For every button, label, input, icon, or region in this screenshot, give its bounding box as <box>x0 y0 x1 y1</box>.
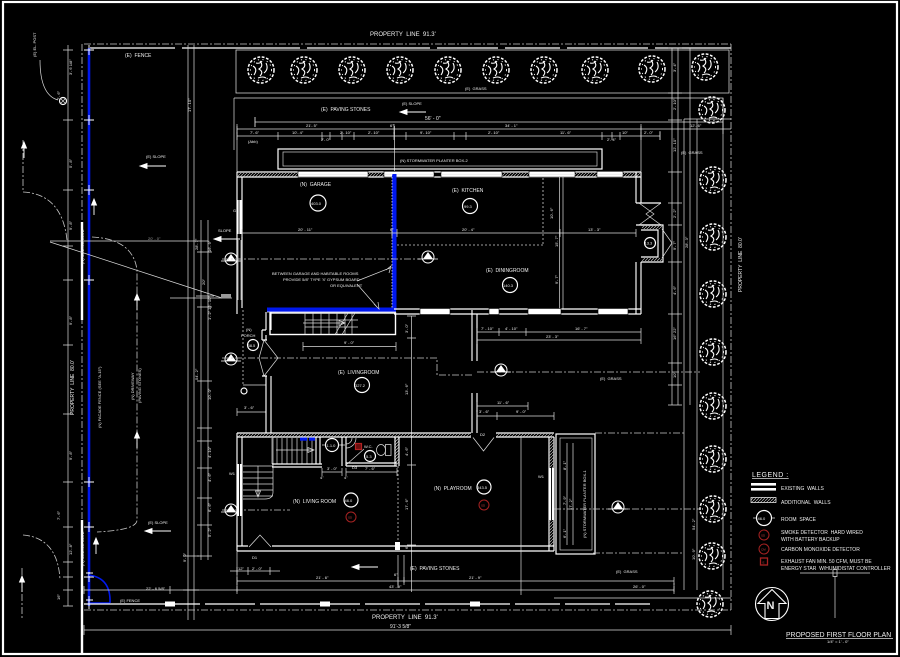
svg-text:9'- 10": 9'- 10" <box>420 130 432 135</box>
svg-text:7' - 6": 7' - 6" <box>365 466 376 471</box>
svg-text:46.0: 46.0 <box>345 498 354 503</box>
svg-text:PROVIDE 5/8" TYPE 'X' GYPSUM B: PROVIDE 5/8" TYPE 'X' GYPSUM BOARD <box>283 277 360 282</box>
svg-text:(N) FACADE FENCE (SEE "A-15"): (N) FACADE FENCE (SEE "A-15") <box>97 366 102 428</box>
svg-text:17'- 6": 17'- 6" <box>404 498 409 510</box>
svg-text:3' - 6": 3' - 6" <box>244 405 255 410</box>
svg-text:11' - 6": 11' - 6" <box>497 400 510 405</box>
svg-text:6": 6" <box>390 123 394 128</box>
svg-text:21' - 9": 21' - 9" <box>469 575 482 580</box>
svg-text:W1: W1 <box>538 474 545 479</box>
svg-text:10": 10" <box>672 372 677 378</box>
svg-text:22' - 6 5/8": 22' - 6 5/8" <box>146 586 166 591</box>
svg-text:9'- 7": 9'- 7" <box>672 240 677 250</box>
svg-text:2'- 10": 2'- 10" <box>340 130 352 135</box>
svg-text:(E) GRASS: (E) GRASS <box>681 150 703 155</box>
svg-text:4'- 10": 4'- 10" <box>207 446 212 458</box>
svg-text:10'- 4": 10'- 4" <box>292 130 304 135</box>
svg-text:2'- 2": 2'- 2" <box>672 208 677 218</box>
svg-text:PROPERTY LINE 80.0': PROPERTY LINE 80.0' <box>738 237 744 292</box>
svg-text:W.C.: W.C. <box>364 444 373 449</box>
svg-text:3'- 0": 3'- 0" <box>404 323 409 333</box>
svg-text:(Abb): (Abb) <box>248 139 258 144</box>
svg-text:SLOPE: SLOPE <box>218 228 232 233</box>
svg-text:EXHAUST FAN MIN. 50 CFM, MUST: EXHAUST FAN MIN. 50 CFM, MUST BE <box>781 559 872 565</box>
svg-text:9'- 8": 9'- 8" <box>68 315 73 325</box>
svg-text:12'- 8": 12'- 8" <box>68 543 73 555</box>
svg-text:6": 6" <box>390 227 394 232</box>
svg-text:(N) SLIDING GATE: (N) SLIDING GATE <box>80 229 85 264</box>
svg-text:(E) PAVING STONES: (E) PAVING STONES <box>410 566 460 572</box>
svg-text:4'- 6": 4'- 6" <box>672 285 677 295</box>
svg-text:(E) SLOPE: (E) SLOPE <box>148 520 168 525</box>
svg-text:21' - 6": 21' - 6" <box>316 575 329 580</box>
svg-text:ROOM SPACE: ROOM SPACE <box>781 517 817 523</box>
svg-text:91'-3 5/8": 91'-3 5/8" <box>390 624 411 630</box>
svg-text:LEGEND :: LEGEND : <box>752 472 789 479</box>
svg-text:54'- 2": 54'- 2" <box>691 518 696 530</box>
svg-text:6": 6" <box>394 572 398 577</box>
svg-text:16'- 9": 16'- 9" <box>207 240 212 252</box>
svg-text:3' - 6": 3' - 6" <box>479 409 490 414</box>
svg-text:10'- 6": 10'- 6" <box>549 207 554 219</box>
svg-text:9'- 8": 9'- 8" <box>68 220 73 230</box>
svg-text:2'- 4": 2'- 4" <box>607 137 617 142</box>
svg-text:20' - 0": 20' - 0" <box>148 236 161 241</box>
svg-text:(E) GRASS: (E) GRASS <box>465 86 487 91</box>
svg-text:20' - 4": 20' - 4" <box>462 227 475 232</box>
svg-text:3'- 6 1/8": 3'- 6 1/8" <box>68 59 73 75</box>
svg-text:9'- 7": 9'- 7" <box>554 274 559 284</box>
svg-text:(E) SLOPE: (E) SLOPE <box>146 154 166 159</box>
svg-text:2'- 10": 2'- 10" <box>488 130 500 135</box>
svg-text:ENERGY STAR W/HUMIDISTAT CONT: ENERGY STAR W/HUMIDISTAT CONTROLLER <box>781 566 891 572</box>
svg-text:54'- 2": 54'- 2" <box>194 368 199 380</box>
svg-text:1'- 2" 12'- 10": 1'- 2" 12'- 10" <box>207 296 212 320</box>
svg-text:W1: W1 <box>229 471 236 476</box>
svg-text:140.3: 140.3 <box>503 283 514 288</box>
svg-text:7'- 6": 7'- 6" <box>56 90 61 100</box>
svg-text:10'- 9": 10'- 9" <box>691 548 696 560</box>
svg-text:(N): (N) <box>246 327 252 332</box>
svg-text:1.1.0: 1.1.0 <box>327 443 337 448</box>
svg-text:21'- 5": 21'- 5" <box>306 123 318 128</box>
svg-text:WITH BATTERY BACKUP: WITH BATTERY BACKUP <box>781 537 840 543</box>
svg-text:4' - 10": 4' - 10" <box>505 326 518 331</box>
svg-text:10": 10" <box>622 130 628 135</box>
svg-text:12'- 10": 12'- 10" <box>672 138 677 152</box>
svg-text:(N) LIVING ROOM: (N) LIVING ROOM <box>293 499 336 505</box>
svg-text:9' - 0": 9' - 0" <box>516 409 527 414</box>
svg-text:(N) STORMWATER PLANTER BOX-2: (N) STORMWATER PLANTER BOX-2 <box>400 158 468 163</box>
svg-text:7'- 9": 7'- 9" <box>562 495 567 505</box>
svg-text:28'- 3": 28'- 3" <box>684 236 689 248</box>
svg-text:343.5: 343.5 <box>477 485 488 490</box>
svg-text:E: E <box>763 561 765 565</box>
svg-text:(PAVING STONES): (PAVING STONES) <box>137 368 142 403</box>
svg-text:3' - 0": 3' - 0" <box>327 466 338 471</box>
svg-text:(E) DININGROOM: (E) DININGROOM <box>486 268 529 274</box>
svg-text:2'- 0": 2'- 0" <box>644 130 654 135</box>
svg-text:17'- 2": 17'- 2" <box>568 498 573 510</box>
svg-text:327.2: 327.2 <box>355 383 366 388</box>
svg-text:16' - 7": 16' - 7" <box>575 326 588 331</box>
svg-text:99.3: 99.3 <box>464 204 473 209</box>
svg-text:6'- 6": 6'- 6" <box>207 502 212 512</box>
svg-text:(E) FENCE: (E) FENCE <box>125 53 152 59</box>
svg-text:4": 4" <box>344 475 348 480</box>
svg-text:15'- 7": 15'- 7" <box>554 235 559 247</box>
svg-text:5.3: 5.3 <box>366 454 372 459</box>
svg-text:56' - 0": 56' - 0" <box>425 116 441 122</box>
svg-text:2'- 0": 2'- 0" <box>321 137 331 142</box>
svg-text:5'- 8": 5'- 8" <box>68 158 73 168</box>
svg-text:20' - 11": 20' - 11" <box>298 227 313 232</box>
svg-text:PROPERTY LINE 91.3': PROPERTY LINE 91.3' <box>370 32 436 38</box>
svg-text:9' - 0": 9' - 0" <box>344 340 355 345</box>
svg-text:8'- 1": 8'- 1" <box>562 460 567 470</box>
svg-text:13' - 3": 13' - 3" <box>588 227 601 232</box>
svg-text:N: N <box>767 600 775 612</box>
svg-text:(N) SLIDING GATE: (N) SLIDING GATE <box>80 531 85 566</box>
svg-text:28'- 7": 28'- 7" <box>194 238 199 250</box>
svg-text:6": 6" <box>404 545 409 549</box>
svg-text:4'- 6": 4'- 6" <box>207 472 212 482</box>
svg-text:12'- 6": 12'- 6" <box>690 123 702 128</box>
svg-text:OR EQUIVALENT: OR EQUIVALENT <box>330 283 363 288</box>
svg-text:13'- 6": 13'- 6" <box>404 383 409 395</box>
svg-text:(N) STORMWATER PLANTER BOX-1: (N) STORMWATER PLANTER BOX-1 <box>582 470 587 538</box>
svg-text:PROPERTY LINE 91.3': PROPERTY LINE 91.3' <box>372 615 438 621</box>
svg-text:(E) FENCE: (E) FENCE <box>120 598 140 603</box>
svg-text:38.5: 38.5 <box>248 343 257 348</box>
svg-text:26' - 0": 26' - 0" <box>633 584 646 589</box>
svg-text:20": 20" <box>201 279 206 285</box>
svg-text:BETWEEN GARAGE AND HABITABLE R: BETWEEN GARAGE AND HABITABLE ROOMS <box>272 271 359 276</box>
svg-text:1/4" = 1' - 0": 1/4" = 1' - 0" <box>827 639 849 644</box>
svg-text:3'- 4": 3'- 4" <box>672 62 677 72</box>
svg-text:12": 12" <box>238 566 244 571</box>
svg-text:34' - 1": 34' - 1" <box>505 123 518 128</box>
svg-text:CARBON MONOXIDE DETECTOR: CARBON MONOXIDE DETECTOR <box>781 547 860 553</box>
svg-text:7'- 6": 7'- 6" <box>250 130 260 135</box>
svg-text:4": 4" <box>320 475 324 480</box>
svg-text:(N) PLAYROOM: (N) PLAYROOM <box>434 486 472 492</box>
svg-text:(E) LIVINGROOM: (E) LIVINGROOM <box>338 370 379 376</box>
svg-text:(E) GRASS: (E) GRASS <box>616 569 638 574</box>
svg-text:23' - 3": 23' - 3" <box>546 334 559 339</box>
svg-text:PORCH: PORCH <box>241 333 256 338</box>
svg-text:403.0: 403.0 <box>311 201 322 206</box>
svg-text:2' - 0": 2' - 0" <box>252 566 263 571</box>
svg-text:EXISTING WALLS: EXISTING WALLS <box>781 486 825 492</box>
svg-text:7'- 6": 7'- 6" <box>56 510 61 520</box>
svg-text:2'- 10": 2'- 10" <box>368 130 380 135</box>
svg-text:17'- 10": 17'- 10" <box>187 98 192 112</box>
svg-text:7' - 10": 7' - 10" <box>481 326 494 331</box>
svg-text:D1: D1 <box>252 555 258 560</box>
svg-text:(E) SLOPE: (E) SLOPE <box>402 101 422 106</box>
svg-text:13.3: 13.3 <box>645 241 654 246</box>
svg-text:(E) PAVING STONES: (E) PAVING STONES <box>321 107 371 113</box>
svg-text:9'- 8": 9'- 8" <box>68 450 73 460</box>
svg-text:43' - 9": 43' - 9" <box>389 584 402 589</box>
svg-text:(E) EL. POST: (E) EL. POST <box>32 32 37 57</box>
svg-text:CM: CM <box>761 548 766 552</box>
svg-text:11'- 6": 11'- 6" <box>560 130 572 135</box>
svg-text:16" 22": 16" 22" <box>672 327 677 340</box>
svg-text:9'- 0": 9'- 0" <box>182 552 187 562</box>
svg-text:4'- 6": 4'- 6" <box>404 446 409 456</box>
svg-text:SMOKE DETECTOR HARD WIRED: SMOKE DETECTOR HARD WIRED <box>781 530 863 536</box>
svg-text:2'- 10": 2'- 10" <box>672 98 677 110</box>
svg-text:ADDITIONAL WALLS: ADDITIONAL WALLS <box>781 500 831 506</box>
svg-text:6'- 1": 6'- 1" <box>562 528 567 538</box>
svg-text:10'- 0": 10'- 0" <box>207 388 212 400</box>
svg-text:5'- 2": 5'- 2" <box>207 527 212 537</box>
svg-text:(N) GARAGE: (N) GARAGE <box>300 182 332 188</box>
svg-text:46.0: 46.0 <box>758 516 767 521</box>
svg-text:(N) DRIVEWAY: (N) DRIVEWAY <box>130 372 135 400</box>
svg-text:PROPOSED FIRST FLOOR PLAN: PROPOSED FIRST FLOOR PLAN <box>786 632 893 639</box>
svg-text:(E) GRASS: (E) GRASS <box>600 376 622 381</box>
svg-text:16": 16" <box>56 594 61 600</box>
svg-text:PROPERTY LINE 80.0': PROPERTY LINE 80.0' <box>70 360 76 415</box>
svg-text:(E) KITCHEN: (E) KITCHEN <box>452 188 484 194</box>
svg-text:D2: D2 <box>480 432 486 437</box>
